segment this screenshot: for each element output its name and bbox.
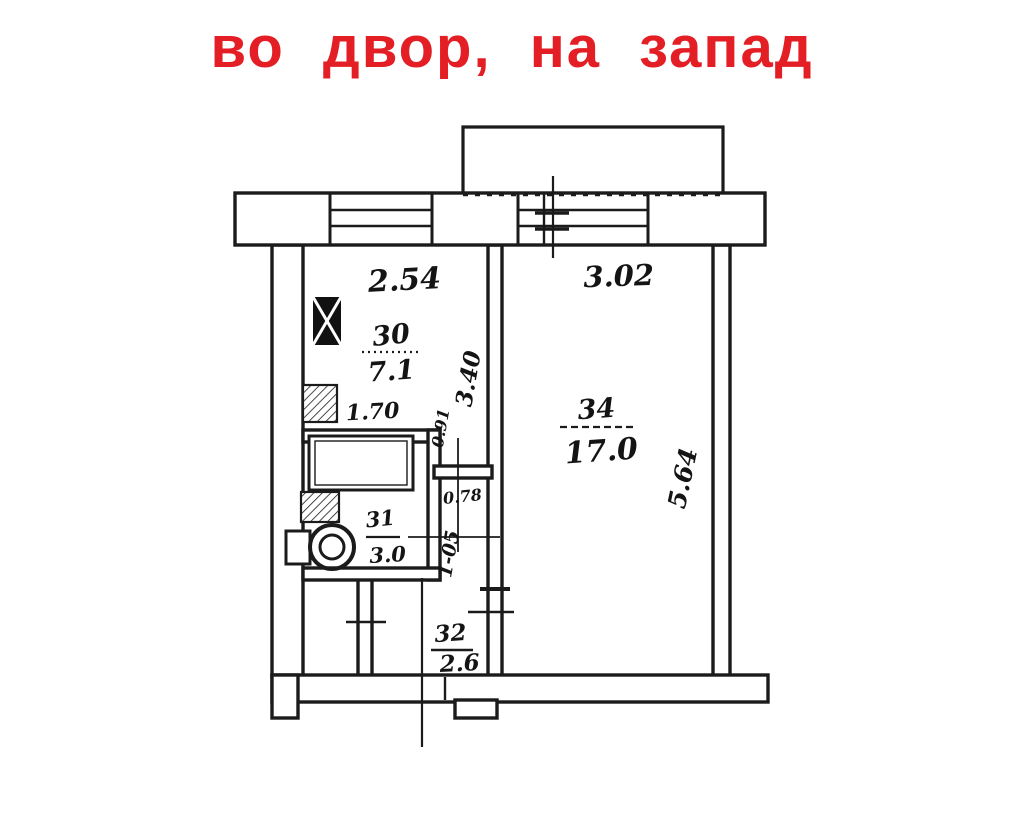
bathtub — [309, 436, 413, 490]
room-area-bathroom: 3.0 — [369, 541, 407, 568]
bathroom-bottom-wall — [303, 568, 440, 580]
top-exterior-wall — [235, 193, 765, 245]
dim-living-width: 3.02 — [583, 258, 655, 294]
entrance-step — [455, 700, 497, 718]
bottom-left-wall-foot — [272, 675, 298, 718]
bottom-exterior-wall — [272, 675, 768, 702]
toilet-bowl — [310, 525, 354, 569]
toilet-bowl-inner — [320, 535, 344, 559]
room-area-living: 17.0 — [564, 432, 639, 472]
dim-kitchen-depth: 3.40 — [450, 349, 486, 409]
floor-plan-drawing: 2.54 3.02 30 7.1 1.70 3.40 0.91 0.78 1-0… — [0, 0, 1024, 815]
room-area-hall: 2.6 — [438, 649, 480, 678]
room-number-living: 34 — [577, 393, 617, 427]
floor-plan-page: во двор, на запад — [0, 0, 1024, 815]
hall-partition-wall — [358, 578, 372, 678]
dim-wall-small: 0.91 — [428, 407, 453, 449]
dim-door-width: 0.78 — [442, 485, 483, 508]
dim-kitchen-width: 2.54 — [366, 261, 442, 300]
room-number-hall: 32 — [434, 619, 468, 648]
right-exterior-wall — [713, 245, 730, 677]
washbasin-icon — [301, 492, 339, 522]
balcony-outline — [463, 127, 723, 192]
toilet-tank — [286, 531, 310, 564]
room-number-kitchen: 30 — [371, 318, 412, 353]
dim-kitchen-inner: 1.70 — [345, 398, 401, 427]
room-number-bathroom: 31 — [364, 505, 396, 533]
kitchen-hall-stub-wall — [434, 466, 492, 478]
left-exterior-wall — [272, 245, 303, 677]
kitchen-sink-icon — [303, 385, 337, 422]
room-area-kitchen: 7.1 — [367, 354, 416, 388]
dim-living-depth: 5.64 — [662, 445, 703, 511]
